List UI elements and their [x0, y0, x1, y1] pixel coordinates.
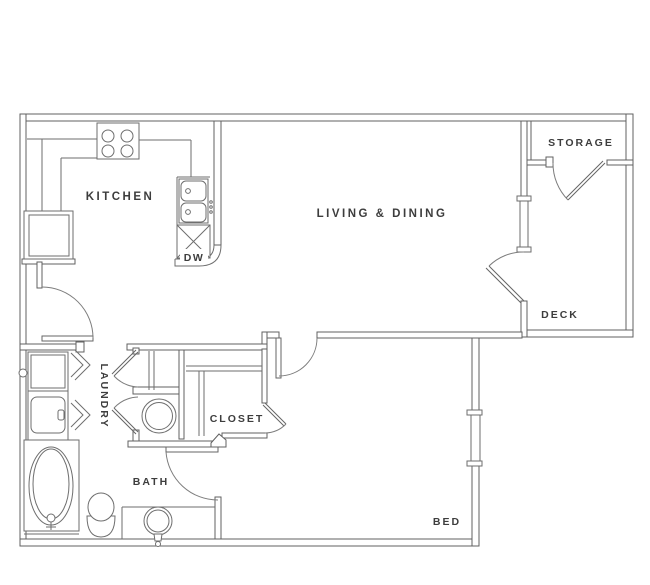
closet-shelves [186, 366, 262, 436]
bath-label: BATH [133, 476, 169, 488]
bath-door-swing-symbol [166, 447, 218, 500]
kitchen-sink-icon [179, 179, 212, 223]
laundry-label: LAUNDRY [98, 364, 110, 429]
closet-label: CLOSET [210, 413, 265, 425]
living-room-window [517, 196, 531, 252]
outer-walls [20, 114, 633, 546]
linen-closet-door-swing-symbol [112, 350, 138, 387]
living-dining-label: LIVING & DINING [317, 208, 448, 220]
bed-label: BED [433, 516, 461, 528]
water-heater-icon [142, 399, 176, 433]
kitchen-label: KITCHEN [86, 191, 155, 203]
closet-door-swing-symbol [263, 403, 286, 433]
linen-closet-shelves [149, 351, 154, 390]
bedroom-window [467, 410, 482, 466]
storage-label: STORAGE [548, 137, 614, 149]
bathtub-icon [24, 440, 79, 534]
utility-closet-door-swing-symbol [112, 397, 138, 434]
deck-door-swing-symbol [486, 252, 524, 303]
deck-label: DECK [541, 309, 579, 321]
stove-icon [97, 123, 139, 159]
floor-plan-page: KITCHEN LIVING & DINING STORAGE DECK CLO… [0, 0, 650, 585]
hall-door-swing-symbol [42, 287, 93, 341]
dishwasher-label: DW [184, 252, 205, 264]
floor-plan-canvas: KITCHEN LIVING & DINING STORAGE DECK CLO… [0, 0, 650, 585]
toilet-icon [87, 493, 115, 537]
laundry-bifold-door-symbol [71, 350, 90, 430]
bedroom-door-swing-symbol [276, 338, 317, 378]
washer-dryer-icon [19, 352, 70, 446]
refrigerator-icon [24, 211, 73, 259]
storage-door-swing-symbol [553, 161, 605, 200]
